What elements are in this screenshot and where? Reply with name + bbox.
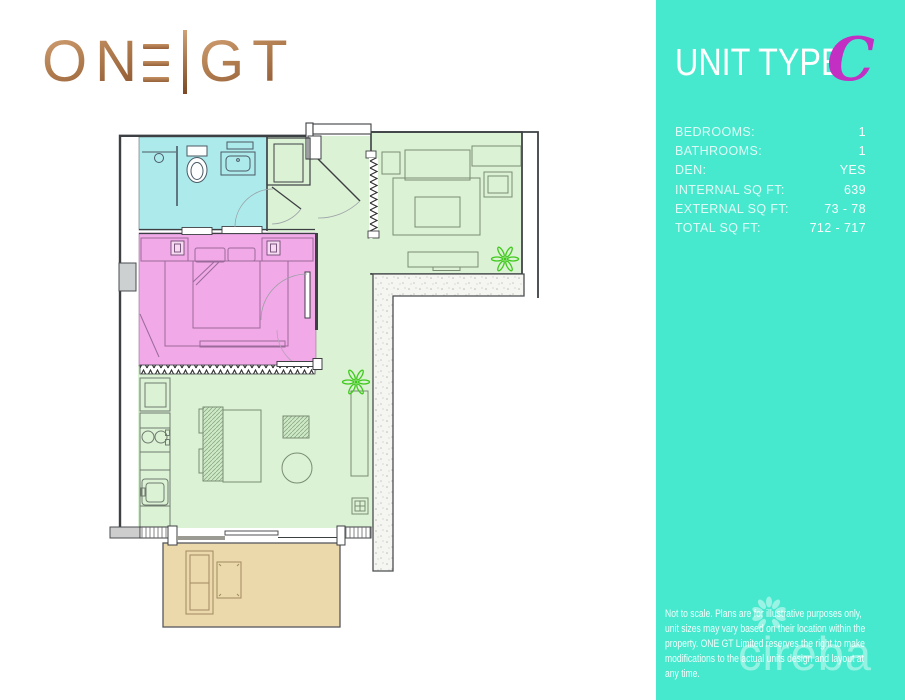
bathroom-door-threshold	[182, 228, 212, 235]
balcony-door-panel2	[225, 531, 278, 535]
spec-value: 73 - 78	[824, 200, 866, 219]
living-dining-kitchen-area	[138, 365, 373, 528]
logo-e-icon	[143, 44, 169, 82]
balcony-door-jamb-left	[168, 526, 177, 545]
logo-divider-bar-icon	[183, 30, 187, 94]
den-glass-zigzag-icon	[369, 158, 378, 231]
spec-value: 1	[859, 123, 866, 142]
logo-text-on: ON	[42, 33, 145, 91]
spec-row-den: DEN: YES	[675, 161, 866, 180]
spec-value: 712 - 717	[810, 219, 866, 238]
spec-label: EXTERNAL SQ FT:	[675, 200, 789, 219]
spec-label: INTERNAL SQ FT:	[675, 181, 785, 200]
spec-label: BEDROOMS:	[675, 123, 755, 142]
den-jamb-bottom	[368, 231, 379, 238]
spec-row-bedrooms: BEDROOMS: 1	[675, 123, 866, 142]
spec-value: 1	[859, 142, 866, 161]
spec-label: TOTAL SQ FT:	[675, 219, 761, 238]
logo-text-gt: GT	[199, 33, 296, 91]
window-right-glass-icon	[345, 527, 371, 538]
balcony-door-panel1	[176, 536, 225, 540]
page-title: UNIT TYPE	[675, 44, 843, 82]
bedroom-door-leaf	[305, 272, 310, 318]
bottom-wall-end	[110, 527, 140, 538]
spec-value: 639	[844, 181, 866, 200]
spec-row-bathrooms: BATHROOMS: 1	[675, 142, 866, 161]
toilet-icon	[187, 146, 207, 183]
unit-letter: C	[827, 30, 875, 90]
spec-row-external-sqft: EXTERNAL SQ FT: 73 - 78	[675, 200, 866, 219]
unit-title-row: UNIT TYPE C	[675, 44, 872, 82]
hallway-area	[316, 232, 373, 368]
den-jamb-top	[366, 151, 376, 158]
spec-row-total-sqft: TOTAL SQ FT: 712 - 717	[675, 219, 866, 238]
floor-plan	[108, 115, 550, 637]
left-wall-shaft	[119, 263, 136, 291]
balcony-door-jamb-right	[337, 526, 345, 545]
spec-label: DEN:	[675, 161, 706, 180]
unit-specs: BEDROOMS: 1 BATHROOMS: 1 DEN: YES INTERN…	[675, 123, 866, 238]
window-left-glass-icon	[140, 527, 168, 538]
onegt-logo: ON GT	[42, 26, 296, 98]
spec-label: BATHROOMS:	[675, 142, 762, 161]
unit-info-panel: UNIT TYPE C BEDROOMS: 1 BATHROOMS: 1 DEN…	[656, 0, 905, 700]
bathroom-pocket-door	[222, 227, 262, 234]
terrace-wall	[373, 274, 524, 571]
bedroom-sliding-door-cap	[313, 359, 322, 370]
spec-row-internal-sqft: INTERNAL SQ FT: 639	[675, 181, 866, 200]
cireba-watermark: cireba	[738, 630, 872, 677]
spec-value: YES	[840, 161, 866, 180]
bedroom-sliding-door	[277, 362, 315, 367]
entry-top-wall	[313, 124, 371, 134]
